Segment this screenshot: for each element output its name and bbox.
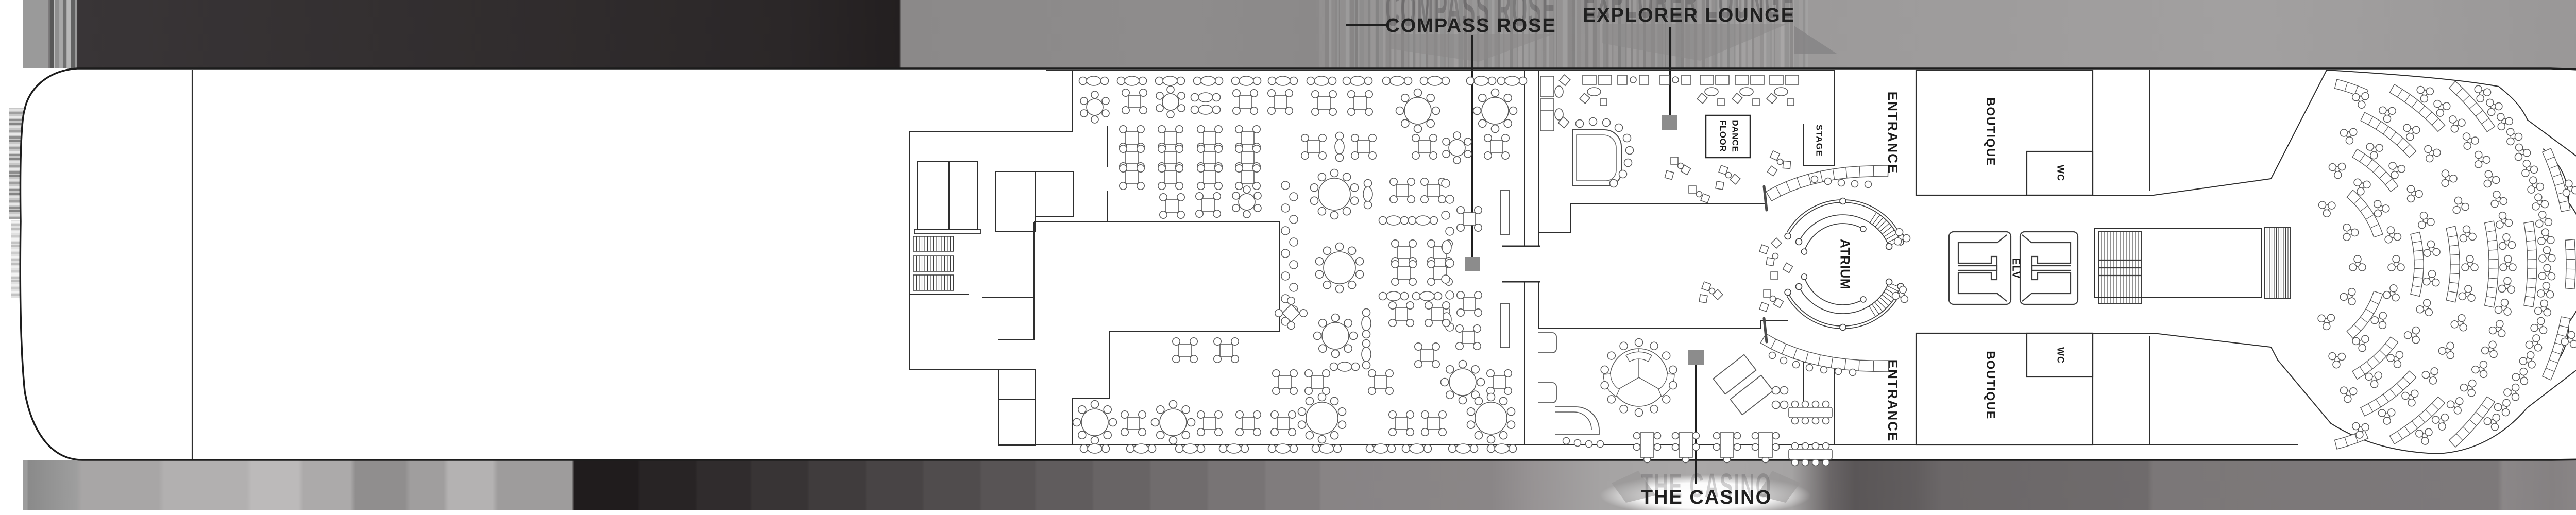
svg-text:ATRIUM: ATRIUM — [1837, 239, 1852, 289]
svg-text:WC: WC — [2055, 165, 2065, 181]
svg-text:ELV: ELV — [2010, 258, 2022, 279]
svg-text:FLOOR: FLOOR — [1718, 120, 1728, 152]
svg-text:ENTRANCE: ENTRANCE — [1885, 92, 1901, 174]
svg-text:DANCE: DANCE — [1731, 120, 1740, 152]
svg-text:STAGE: STAGE — [1815, 125, 1824, 157]
svg-text:BOUTIQUE: BOUTIQUE — [1984, 97, 1997, 166]
svg-text:EXPLORER LOUNGE: EXPLORER LOUNGE — [1583, 5, 1795, 26]
svg-text:BOUTIQUE: BOUTIQUE — [1984, 351, 1997, 419]
svg-text:WC: WC — [2055, 347, 2065, 364]
svg-text:COMPASS ROSE: COMPASS ROSE — [1385, 15, 1556, 37]
svg-text:THE CASINO: THE CASINO — [1641, 487, 1772, 508]
svg-text:ENTRANCE: ENTRANCE — [1885, 359, 1901, 442]
